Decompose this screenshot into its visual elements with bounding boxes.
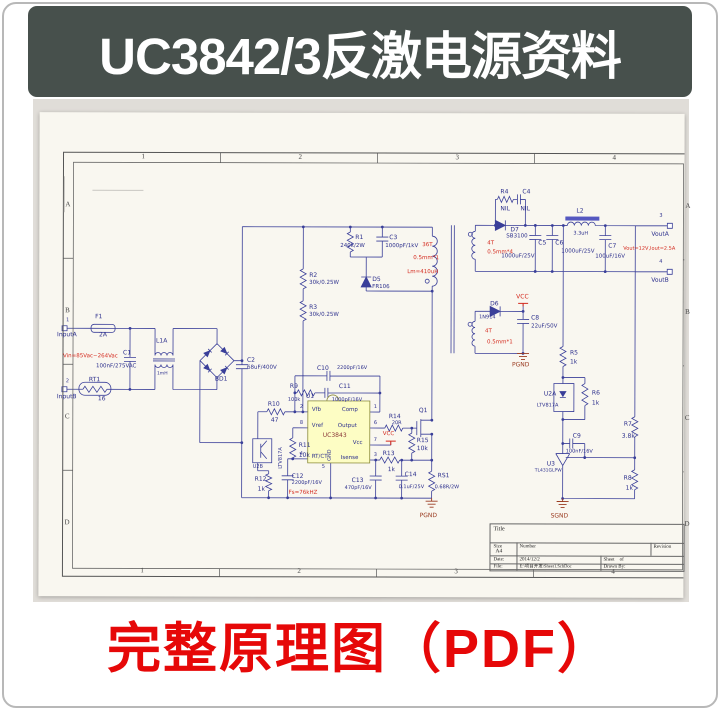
schematic-label: 1: [66, 318, 69, 323]
schematic-paper: F12AInputA12InputBVin=85Vac~264VacC1100n…: [38, 112, 684, 598]
schematic-label: R5: [570, 351, 578, 357]
schematic-label: R7: [624, 422, 632, 428]
schematic-label: 7: [374, 438, 377, 443]
schematic-label: C5: [538, 240, 546, 246]
schematic-label: C6: [555, 241, 563, 247]
schematic-label: U1: [306, 394, 314, 400]
schematic-label: VoutB: [651, 278, 669, 284]
schematic-label: 1k: [388, 467, 395, 473]
schematic-label: 3: [374, 453, 377, 458]
schematic-label: 100nF/16V: [566, 450, 593, 455]
schematic-label: 10k: [417, 446, 428, 452]
schematic-label: 1mH: [157, 372, 168, 377]
schematic-label: R4: [500, 189, 508, 195]
grid-ref: D: [685, 521, 690, 528]
schematic-label: R11: [299, 443, 311, 449]
schematic-label: 36T: [422, 243, 432, 249]
schematic-label: 4: [300, 452, 303, 457]
schematic-label: R1: [355, 235, 363, 241]
schematic-label: BD1: [215, 377, 228, 383]
grid-ref: 3: [454, 568, 458, 575]
schematic-label: R12: [255, 477, 267, 483]
schematic-label: R10: [268, 402, 280, 408]
grid-ref: 2: [299, 154, 303, 161]
schematic-label: L1A: [156, 338, 167, 344]
schematic-label: VCC: [516, 294, 529, 300]
schematic-label: R8: [624, 476, 632, 482]
schematic-label: 3.3uH: [573, 232, 588, 237]
schematic-label: Isense: [341, 456, 359, 462]
schematic-label: U2B: [253, 465, 263, 470]
title-banner: UC3842/3反激电源资料: [28, 6, 692, 97]
schematic-label: 3: [659, 214, 662, 219]
schematic-label: R15: [417, 438, 429, 444]
schematic-label: 1k: [258, 487, 265, 493]
grid-ref: 1: [142, 153, 146, 160]
schematic-label: 100k: [288, 398, 300, 403]
schematic-label: 2: [66, 379, 69, 384]
schematic-label: D6: [490, 301, 498, 307]
schematic-label: Vout=12V,Iout=2.5A: [623, 247, 675, 252]
title-block: Title Size A4 Number Revision Date: 2014…: [489, 523, 684, 572]
schematic-label: Vcc: [353, 441, 363, 447]
schematic-label: F1: [95, 314, 102, 320]
schematic-label: 5: [322, 465, 325, 470]
schematic-label: FR106: [372, 285, 389, 291]
grid-ref: 1: [140, 567, 144, 574]
schematic-label: 3.8k: [622, 434, 635, 440]
schematic-label: NIL: [500, 206, 510, 212]
title-block-divider: [650, 543, 651, 556]
grid-ref: A: [685, 203, 690, 210]
schematic-label: 30k/0.25W: [309, 313, 339, 319]
schematic-label: SB3100: [506, 234, 527, 240]
schematic-label: 0.5mm*1: [413, 256, 439, 262]
schematic-label: C8: [531, 315, 539, 321]
schematic-label: C1: [123, 350, 131, 356]
schematic-label: Output: [338, 424, 357, 430]
schematic-label: LTV817A: [537, 403, 559, 408]
grid-ref: B: [685, 309, 690, 316]
schematic-label: R3: [309, 305, 317, 311]
schematic-label: RT/CT: [312, 455, 328, 461]
schematic-label: 4T: [485, 329, 492, 335]
schematic-label: 2200pF/16V: [292, 481, 322, 486]
grid-ref: A: [65, 201, 70, 208]
schematic-label: R2: [309, 273, 317, 279]
schematic-label: 4: [659, 260, 662, 265]
schematic-label: R6: [592, 391, 600, 397]
grid-ref: 4: [613, 155, 617, 162]
schematic-label: Fs=76kHZ: [289, 491, 318, 497]
schematic-label: U3: [547, 461, 555, 467]
schematic-label: R9: [290, 384, 298, 390]
promo-image: UC3842/3反激电源资料 F12AInputA12InputBVin=85V…: [0, 0, 720, 710]
grid-ref: D: [65, 519, 70, 526]
footer-caption: 完整原理图（PDF）: [0, 604, 720, 683]
schematic-label: C11: [339, 384, 351, 390]
tb-date-label: Date:: [493, 557, 504, 562]
schematic-label: U2A: [544, 391, 556, 397]
schematic-label: RS1: [438, 473, 450, 479]
schematic-label: RT1: [89, 377, 100, 383]
schematic-label: UC3843: [323, 433, 347, 439]
schematic-label: TL431GLPW: [535, 469, 562, 474]
schematic-label: PGND: [420, 513, 437, 519]
banner-title: UC3842/3反激电源资料: [99, 15, 621, 89]
tb-size-value: A4: [495, 549, 502, 555]
schematic-label: Vref: [312, 424, 323, 430]
schematic-label: C2: [247, 358, 255, 364]
schematic-label: 1000pF/1kV: [385, 244, 418, 250]
schematic-label: 1N914: [479, 315, 495, 320]
schematic-label: Q1: [419, 408, 428, 414]
tb-title-label: Title: [494, 526, 505, 532]
schematic-label: 1k: [592, 401, 599, 407]
tb-number-label: Number: [519, 544, 535, 549]
caption-text: 完整原理图（PDF）: [107, 619, 613, 679]
title-block-divider: [600, 556, 601, 571]
schematic-label: 470pF/16V: [345, 486, 372, 491]
schematic-label: 2200pF/16V: [337, 366, 367, 371]
schematic-label: 30k/0.25W: [309, 281, 339, 287]
schematic-label: C4: [522, 189, 530, 195]
schematic-label: InputB: [57, 394, 77, 400]
schematic-label: 8: [300, 421, 303, 426]
title-block-divider: [516, 542, 517, 570]
schematic-label: C9: [573, 434, 581, 440]
grid-ref: B: [65, 307, 70, 314]
schematic-label: 0.5mm*1: [487, 340, 513, 346]
schematic-label: GND: [328, 449, 333, 460]
schematic-label: 68uF/400V: [247, 366, 277, 372]
schematic-label: 100nF/275VAC: [96, 364, 136, 370]
schematic-label: 47: [271, 418, 279, 424]
schematic-label: 2A: [99, 332, 107, 338]
tb-file-label: File:: [493, 564, 502, 569]
schematic-label: D5: [372, 277, 380, 283]
schematic-label: C3: [389, 235, 397, 241]
schematic-label: 20R: [392, 421, 402, 426]
schematic-label: 4T: [487, 241, 494, 247]
grid-ref: C: [65, 413, 70, 420]
schematic-label: 16: [98, 396, 106, 402]
schematic-label: 1: [374, 405, 377, 410]
schematic-label: 6: [374, 421, 377, 426]
schematic-label: 22uF/50V: [531, 324, 557, 330]
schematic-label: 1k: [626, 486, 633, 492]
schematic-label: LTV817A: [279, 447, 284, 469]
schematic-label: VoutA: [651, 232, 669, 238]
schematic-label: Vin=85Vac~264Vac: [63, 354, 118, 360]
schematic-label: 0.68R/2W: [435, 485, 459, 490]
grid-ref: 2: [297, 568, 301, 575]
schematic-label: PGND: [512, 362, 529, 368]
tb-revision-label: Revision: [653, 545, 671, 550]
schematic-label: 1000pF/16V: [332, 398, 362, 403]
schematic-label: R13: [383, 451, 395, 457]
schematic-label: C13: [352, 478, 364, 484]
schematic-label: 1000uF/25V: [561, 250, 594, 256]
schematic-label: L2: [576, 209, 583, 215]
tb-date-value: 2014/12/2: [519, 557, 539, 562]
schematic-label: C7: [608, 244, 616, 250]
schematic-photo: F12AInputA12InputBVin=85Vac~264VacC1100n…: [33, 99, 689, 602]
grid-ref: C: [685, 415, 690, 422]
schematic-label: 240k/2W: [340, 244, 364, 250]
schematic-label: C14: [405, 472, 417, 478]
schematic-label: InputA: [57, 332, 77, 338]
schematic-label: 1k: [570, 360, 577, 366]
tb-drawn-label: Drawn By:: [603, 565, 625, 570]
tb-file-value: E:\项目开发\Sheet1.SchDoc: [519, 564, 571, 569]
schematic-label: 100uF/16V: [595, 255, 625, 261]
schematic-label: Comp: [342, 408, 358, 414]
grid-ref: 3: [456, 154, 460, 161]
schematic-label: NIL: [520, 206, 530, 212]
schematic-label: SGND: [551, 513, 569, 519]
schematic-label: VCC: [383, 432, 394, 438]
schematic-label: 1000uF/25V: [501, 254, 534, 260]
schematic-label: Lm=410uH: [407, 270, 438, 276]
schematic-label: 2: [300, 405, 303, 410]
schematic-label: 0.1uF/25V: [399, 485, 424, 490]
schematic-label: C10: [317, 366, 329, 372]
tb-sheet-label: Sheet of: [603, 557, 623, 562]
schematic-label: Vfb: [312, 408, 321, 414]
